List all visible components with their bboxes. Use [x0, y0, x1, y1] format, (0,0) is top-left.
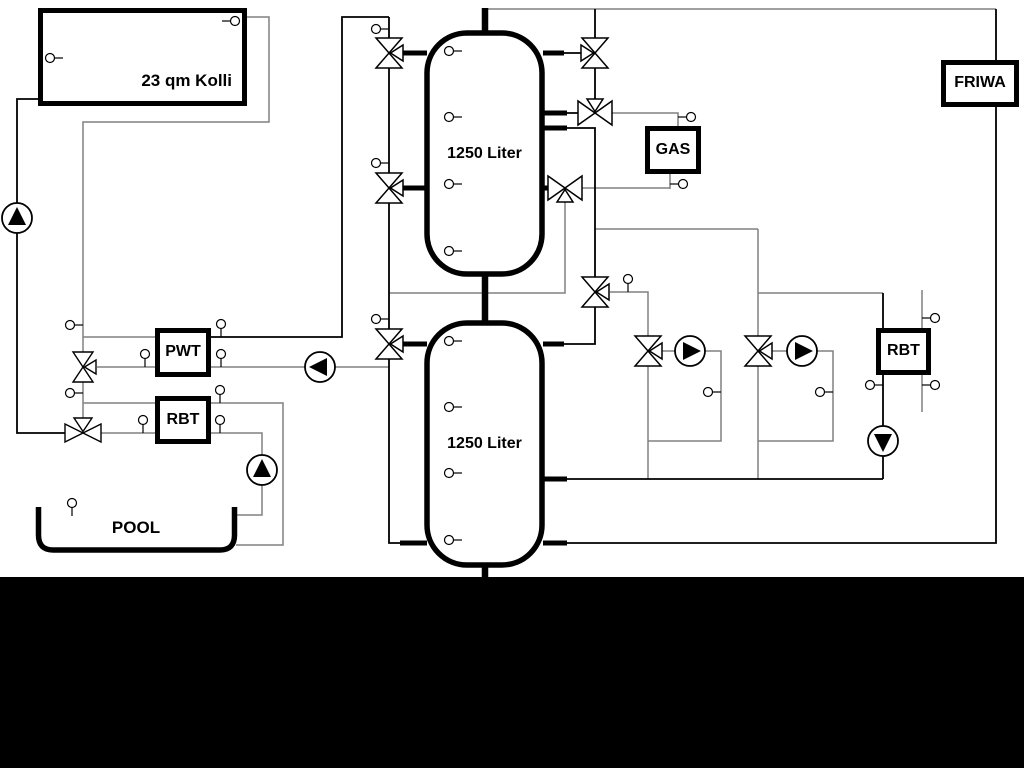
- three-way-valve-icon: [581, 38, 608, 68]
- letterbox-bottom: [0, 577, 1024, 768]
- pipe-left-column: [389, 17, 402, 543]
- temp-sensor-icon: [66, 389, 84, 398]
- three-way-valve-icon: [73, 352, 96, 382]
- friwa-label: FRIWA: [943, 62, 1017, 104]
- pool-label: POOL: [36, 508, 236, 548]
- temp-sensor-icon: [704, 388, 722, 397]
- temp-sensor-icon: [372, 315, 390, 324]
- temp-sensor-icon: [216, 386, 225, 404]
- temp-sensor-icon: [816, 388, 834, 397]
- pipe-right-column-lower: [564, 306, 595, 344]
- three-way-valve-icon: [376, 329, 403, 359]
- three-way-valve-icon: [582, 277, 609, 307]
- temp-sensor-icon: [372, 25, 390, 34]
- pump-icon: [247, 455, 277, 485]
- pump-icon: [2, 203, 32, 233]
- pwt-label: PWT: [157, 330, 209, 374]
- three-way-valve-icon: [376, 173, 403, 203]
- three-way-valve-icon: [376, 38, 403, 68]
- three-way-valve-icon: [548, 176, 582, 202]
- buffer-tank-lower-label: 1250 Liter: [427, 323, 542, 565]
- temp-sensor-icon: [866, 381, 884, 390]
- pump-icon: [868, 426, 898, 456]
- three-way-valve-icon: [578, 99, 612, 125]
- three-way-valve-icon: [635, 336, 662, 366]
- temp-sensor-icon: [139, 416, 148, 434]
- temp-sensor-icon: [66, 321, 84, 330]
- solar-collector-label: 23 qm Kolli: [40, 10, 244, 103]
- temp-sensor-icon: [217, 350, 226, 368]
- temp-sensor-icon: [922, 381, 940, 390]
- gas-boiler-label: GAS: [647, 128, 699, 171]
- temp-sensor-icon: [372, 159, 390, 168]
- three-way-valve-icon: [745, 336, 772, 366]
- pipe-riser-1: [610, 292, 648, 479]
- temp-sensor-icon: [670, 180, 688, 189]
- temp-sensor-icon: [922, 314, 940, 323]
- buffer-tank-upper-label: 1250 Liter: [427, 33, 542, 274]
- temp-sensor-icon: [678, 113, 696, 122]
- three-way-valve-icon: [65, 418, 101, 442]
- dhw-rbt-label: RBT: [878, 330, 929, 372]
- pipe-right-column-upper: [566, 128, 595, 278]
- pipe-solar-flow: [17, 99, 67, 433]
- temp-sensor-icon: [624, 275, 633, 293]
- pump-icon: [305, 352, 335, 382]
- temp-sensor-icon: [141, 350, 150, 368]
- temp-sensor-icon: [217, 320, 226, 338]
- pump-icon: [787, 336, 817, 366]
- pump-icon: [675, 336, 705, 366]
- schematic-page: 23 qm Kolli 1250 Liter 1250 Liter PWT RB…: [0, 0, 1024, 768]
- temp-sensor-icon: [216, 416, 225, 434]
- pool-rbt-label: RBT: [157, 398, 209, 441]
- pipe-gas-top: [611, 113, 678, 127]
